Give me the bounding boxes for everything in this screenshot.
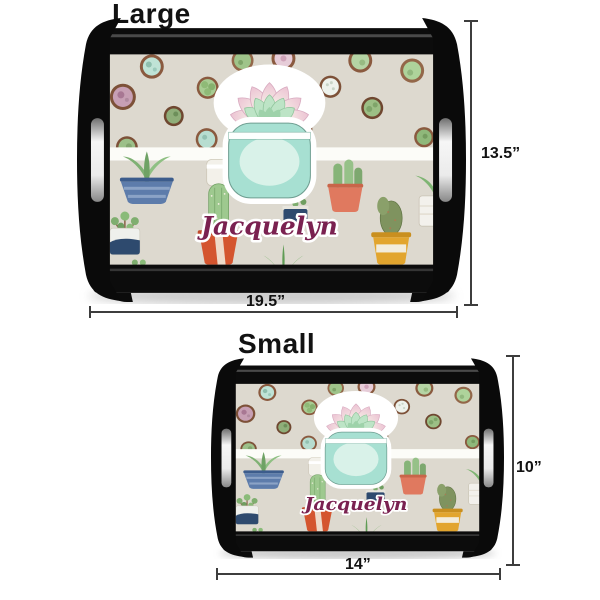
- small-width-label: 14”: [345, 556, 371, 574]
- small-height-measure-line: [512, 355, 514, 566]
- large-height-label: 13.5”: [481, 145, 520, 163]
- large-width-label: 19.5”: [246, 293, 285, 311]
- large-tray-image: [77, 16, 466, 304]
- small-height-label: 10”: [516, 459, 542, 477]
- size-label-small: Small: [238, 330, 315, 358]
- tray-size-comparison-diagram: Jacquelyn Large: [0, 0, 600, 600]
- large-height-measure-line: [470, 20, 472, 306]
- small-tray-image: [211, 357, 504, 559]
- large-width-measure-line: [89, 311, 458, 313]
